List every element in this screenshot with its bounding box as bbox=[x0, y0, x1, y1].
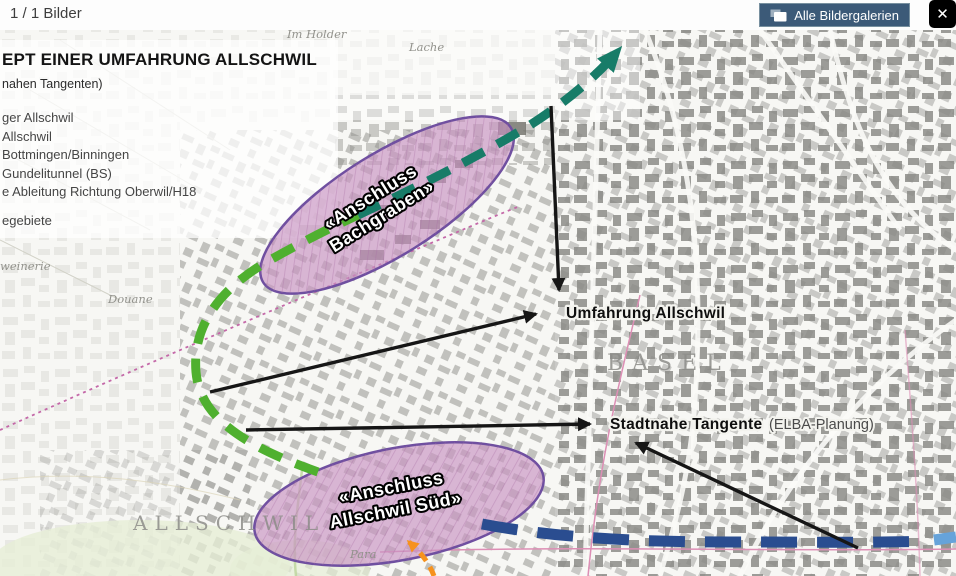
place-label-allschwil: ALLSCHWIL bbox=[132, 511, 325, 535]
close-button[interactable]: ✕ bbox=[929, 0, 956, 28]
place-label-douane: Douane bbox=[107, 292, 153, 306]
all-galleries-button[interactable]: Alle Bildergalerien bbox=[759, 3, 910, 27]
tangente-route-lightblue-segment bbox=[934, 537, 956, 540]
close-icon: ✕ bbox=[936, 5, 949, 23]
image-counter: 1 / 1 Bilder bbox=[10, 5, 82, 22]
map-image: ALLSCHWIL BASEL Douane Im Holder Lache w… bbox=[0, 0, 956, 576]
stadtnahe-tangente-label: Stadtnahe Tangente bbox=[610, 416, 762, 433]
toolbar: 1 / 1 Bilder Alle Bildergalerien ✕ bbox=[0, 0, 956, 30]
elba-planung-note: (ELBA-Planung) bbox=[769, 417, 874, 433]
umfahrung-allschwil-label: Umfahrung Allschwil bbox=[566, 305, 725, 322]
place-label-basel: BASEL bbox=[607, 351, 730, 376]
all-galleries-label: Alle Bildergalerien bbox=[794, 8, 899, 23]
galleries-icon bbox=[770, 9, 787, 22]
place-label-weinerie: weinerie bbox=[0, 259, 51, 273]
image-viewer: ALLSCHWIL BASEL Douane Im Holder Lache w… bbox=[0, 0, 956, 576]
place-label-para: Para bbox=[349, 547, 377, 561]
place-label-lache: Lache bbox=[408, 40, 444, 54]
